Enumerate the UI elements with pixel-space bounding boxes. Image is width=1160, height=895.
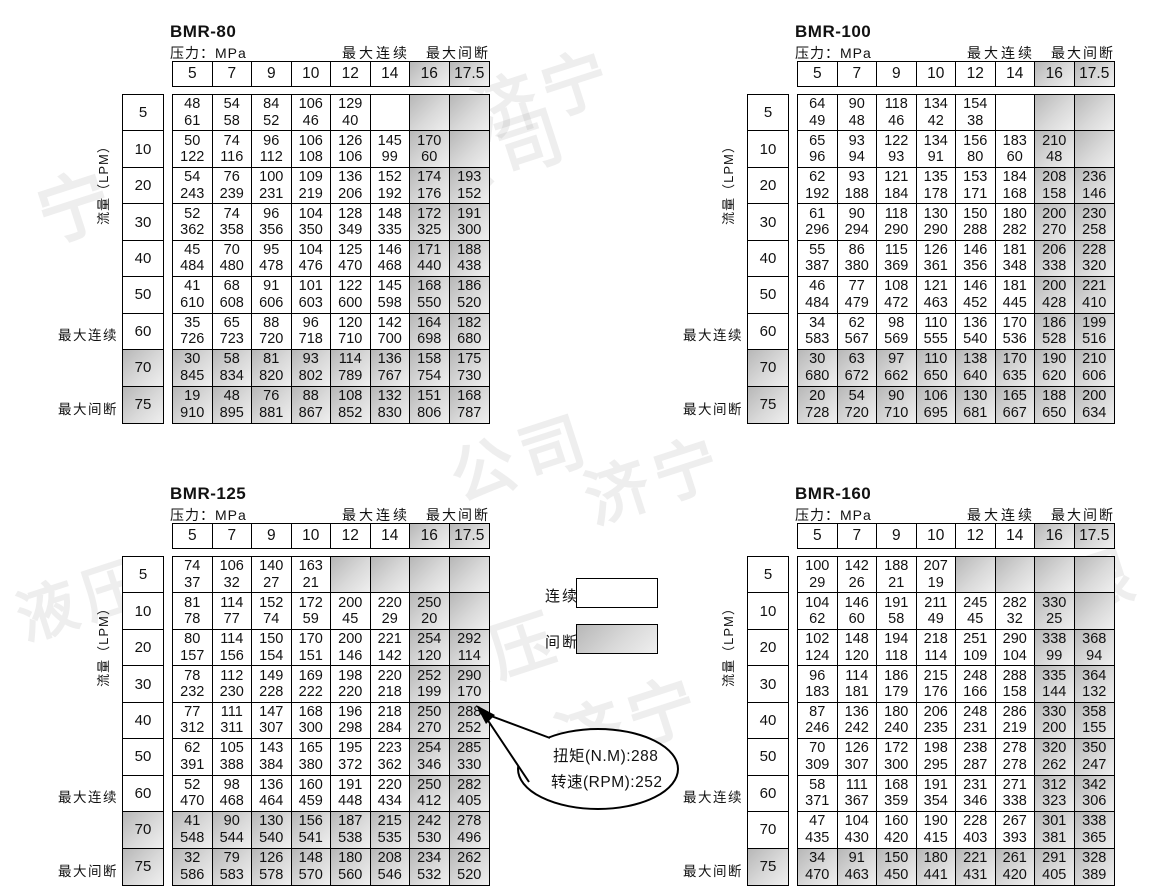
torque-value: 187 [338,813,362,830]
torque-value: 186 [884,668,908,685]
torque-value: 148 [299,850,323,867]
flow-row-40: 40 [748,241,788,277]
cell-BMR-160-75lpm-7mpa: 91463 [838,849,878,885]
pressure-col-5: 5 [798,524,838,548]
speed-value: 380 [299,757,323,774]
cell-BMR-125-70lpm-12mpa: 187538 [331,812,371,848]
speed-value: 48 [1046,149,1062,166]
cell-BMR-80-20lpm-10mpa: 109219 [292,168,332,204]
speed-value: 767 [378,368,402,385]
max-continuous-header: 最大连续 [172,505,410,525]
speed-value: 38 [967,113,983,130]
flow-row-75: 75 [748,849,788,885]
torque-value: 184 [1003,169,1027,186]
cell-BMR-100-10lpm-14mpa: 18360 [996,131,1036,167]
speed-value: 452 [963,295,987,312]
torque-value: 218 [924,631,948,648]
speed-value: 295 [924,757,948,774]
speed-value: 346 [417,757,441,774]
torque-value: 211 [924,595,947,612]
speed-value: 583 [220,867,244,884]
cell-BMR-125-5lpm-5mpa: 7437 [173,557,213,593]
torque-value: 114 [220,595,243,612]
speed-value: 120 [417,648,441,665]
torque-value: 172 [417,206,441,223]
cell-BMR-160-40lpm-12mpa: 248231 [956,703,996,739]
torque-value: 220 [378,777,402,794]
cell-BMR-100-40lpm-7mpa: 86380 [838,241,878,277]
torque-value: 188 [457,242,481,259]
torque-value: 238 [963,740,987,757]
speed-value: 578 [259,867,283,884]
speed-value: 369 [884,258,908,275]
speed-value: 586 [180,867,204,884]
torque-value: 111 [221,704,243,721]
speed-value: 192 [805,186,829,203]
cell-BMR-80-70lpm-17.5mpa: 175730 [450,350,490,386]
speed-value: 365 [1082,830,1106,847]
torque-value: 196 [338,704,362,721]
torque-value: 130 [259,813,283,830]
cell-BMR-125-60lpm-9mpa: 136464 [252,776,292,812]
speed-value: 412 [417,793,441,810]
speed-value: 428 [1042,295,1066,312]
torque-value: 142 [845,558,869,575]
pressure-col-9: 9 [877,62,917,86]
speed-value: 569 [884,331,908,348]
torque-value: 170 [1003,351,1027,368]
cell-BMR-100-40lpm-5mpa: 55387 [798,241,838,277]
speed-value: 48 [849,113,865,130]
speed-value: 60 [421,149,437,166]
torque-value: 193 [457,169,481,186]
cell-BMR-100-75lpm-10mpa: 106695 [917,387,957,423]
cell-BMR-160-75lpm-9mpa: 150450 [877,849,917,885]
flow-row-20: 20 [748,168,788,204]
speed-value: 391 [180,757,204,774]
speed-value: 541 [299,830,323,847]
cell-BMR-100-60lpm-5mpa: 34583 [798,314,838,350]
cell-BMR-100-75lpm-12mpa: 130681 [956,387,996,423]
torque-value: 126 [924,242,948,259]
cell-BMR-160-40lpm-14mpa: 286219 [996,703,1036,739]
torque-value: 254 [417,740,441,757]
speed-value: 536 [1003,331,1027,348]
cell-BMR-80-40lpm-12mpa: 125470 [331,241,371,277]
speed-value: 246 [805,720,829,737]
cell-BMR-100-70lpm-14mpa: 170635 [996,350,1036,386]
cell-BMR-80-50lpm-5mpa: 41610 [173,277,213,313]
data-grid: 4861545884521064612940501227411696112106… [172,94,490,424]
speed-value: 49 [928,611,944,628]
cell-BMR-100-70lpm-7mpa: 63672 [838,350,878,386]
torque-value: 170 [1003,315,1027,332]
torque-value: 186 [457,278,481,295]
cell-BMR-125-50lpm-7mpa: 105388 [213,739,253,775]
cell-BMR-100-10lpm-7mpa: 9394 [838,131,878,167]
cell-BMR-80-20lpm-7mpa: 76239 [213,168,253,204]
speed-value: 270 [1042,222,1066,239]
torque-value: 191 [338,777,362,794]
cell-BMR-160-60lpm-14mpa: 271338 [996,776,1036,812]
cell-BMR-125-5lpm-7mpa: 10632 [213,557,253,593]
continuous-legend-swatch [576,578,658,608]
speed-value: 192 [378,186,402,203]
max-intermittent-header: 最大间断 [1037,505,1115,525]
speed-value: 112 [260,149,283,166]
cell-BMR-160-75lpm-10mpa: 180441 [917,849,957,885]
cell-BMR-100-60lpm-17.5mpa: 199516 [1075,314,1115,350]
speed-value: 349 [338,222,362,239]
speed-value: 168 [1003,186,1027,203]
cell-BMR-80-60lpm-5mpa: 35726 [173,314,213,350]
torque-value: 163 [299,558,323,575]
speed-value: 99 [382,149,398,166]
torque-value: 248 [963,668,987,685]
speed-value: 21 [303,575,319,592]
cell-BMR-80-70lpm-14mpa: 136767 [371,350,411,386]
torque-value: 132 [378,388,402,405]
torque-value: 126 [845,740,869,757]
speed-value: 550 [417,295,441,312]
cell-BMR-125-30lpm-9mpa: 149228 [252,666,292,702]
table-bmr-160: BMR-160 压力：MPa 最大连续 最大间断 5791012141617.5… [683,486,1117,888]
speed-value: 410 [1082,295,1106,312]
speed-value: 516 [1082,331,1106,348]
torque-value: 19 [184,388,200,405]
speed-value: 94 [1086,648,1102,665]
speed-value: 59 [303,611,319,628]
cell-BMR-125-10lpm-7mpa: 11477 [213,593,253,629]
torque-value: 140 [259,558,283,575]
cell-BMR-80-70lpm-16mpa: 158754 [410,350,450,386]
torque-value: 200 [1082,388,1106,405]
torque-value: 220 [378,668,402,685]
cell-BMR-80-30lpm-12mpa: 128349 [331,204,371,240]
torque-value: 231 [963,777,987,794]
torque-value: 150 [884,850,908,867]
cell-BMR-100-60lpm-12mpa: 136540 [956,314,996,350]
speed-value: 867 [299,405,323,422]
cell-BMR-80-5lpm-5mpa: 4861 [173,95,213,131]
speed-value: 222 [299,684,323,701]
speed-value: 570 [299,867,323,884]
speed-value: 91 [928,149,944,166]
speed-value: 294 [845,222,869,239]
speed-value: 640 [963,368,987,385]
cell-BMR-100-30lpm-16mpa: 200270 [1035,204,1075,240]
speed-value: 430 [845,830,869,847]
speed-value: 270 [417,720,441,737]
cell-BMR-125-10lpm-9mpa: 15274 [252,593,292,629]
pressure-col-16: 16 [1035,524,1075,548]
cell-BMR-80-5lpm-17.5mpa [450,95,490,131]
torque-value: 250 [417,777,441,794]
speed-value: 230 [220,684,244,701]
cell-BMR-80-75lpm-17.5mpa: 168787 [450,387,490,423]
speed-value: 78 [184,611,200,628]
cell-BMR-100-30lpm-7mpa: 90294 [838,204,878,240]
cell-BMR-160-30lpm-7mpa: 114181 [838,666,878,702]
speed-value: 445 [1003,295,1027,312]
speed-value: 46 [303,113,319,130]
cell-BMR-125-50lpm-10mpa: 165380 [292,739,332,775]
cell-BMR-100-50lpm-12mpa: 146452 [956,277,996,313]
cell-BMR-80-5lpm-12mpa: 12940 [331,95,371,131]
cell-BMR-160-70lpm-9mpa: 160420 [877,812,917,848]
cell-BMR-100-5lpm-16mpa [1035,95,1075,131]
cell-BMR-80-10lpm-5mpa: 50122 [173,131,213,167]
cell-BMR-160-40lpm-7mpa: 136242 [838,703,878,739]
cell-BMR-80-70lpm-12mpa: 114789 [331,350,371,386]
speed-value: 27 [263,575,279,592]
torque-value: 54 [184,169,200,186]
speed-value: 476 [299,258,323,275]
speed-value: 434 [378,793,402,810]
speed-value: 463 [845,867,869,884]
torque-value: 104 [805,595,829,612]
cell-BMR-125-30lpm-10mpa: 169222 [292,666,332,702]
speed-value: 754 [417,368,441,385]
torque-value: 47 [809,813,825,830]
speed-value: 188 [845,186,869,203]
speed-value: 29 [809,575,825,592]
torque-value: 267 [1003,813,1027,830]
torque-value: 172 [884,740,908,757]
speed-value: 243 [180,186,204,203]
speed-value: 206 [338,186,362,203]
cell-BMR-160-50lpm-17.5mpa: 350247 [1075,739,1115,775]
cell-BMR-160-10lpm-5mpa: 10462 [798,593,838,629]
torque-value: 106 [924,388,948,405]
cell-BMR-160-50lpm-10mpa: 198295 [917,739,957,775]
cell-BMR-160-30lpm-14mpa: 288158 [996,666,1036,702]
cell-BMR-80-30lpm-10mpa: 104350 [292,204,332,240]
cell-BMR-160-50lpm-16mpa: 320262 [1035,739,1075,775]
cell-BMR-100-5lpm-5mpa: 6449 [798,95,838,131]
cell-BMR-100-50lpm-17.5mpa: 221410 [1075,277,1115,313]
speed-value: 338 [1042,258,1066,275]
torque-value: 98 [888,315,904,332]
speed-value: 520 [457,867,481,884]
speed-value: 247 [1082,757,1106,774]
flow-row-20: 20 [123,630,163,666]
torque-value: 168 [299,704,323,721]
torque-value: 88 [303,388,319,405]
speed-value: 672 [845,368,869,385]
side-label: 最大间断 [681,860,743,880]
torque-value: 215 [924,668,948,685]
torque-value: 171 [417,242,441,259]
pressure-col-9: 9 [252,524,292,548]
speed-value: 60 [1007,149,1023,166]
speed-value: 680 [457,331,481,348]
flow-row-60: 60 [748,314,788,350]
speed-value: 176 [417,186,441,203]
flow-row-70: 70 [123,812,163,848]
speed-value: 681 [963,405,987,422]
flow-row-60: 60 [748,776,788,812]
speed-value: 620 [1042,368,1066,385]
speed-value: 852 [338,405,362,422]
flow-row-30: 30 [123,204,163,240]
torque-value: 221 [1082,278,1106,295]
cell-BMR-125-20lpm-14mpa: 221142 [371,630,411,666]
pressure-header-row: 5791012141617.5 [797,523,1115,549]
torque-value: 191 [457,206,481,223]
cell-BMR-80-70lpm-9mpa: 81820 [252,350,292,386]
cell-BMR-160-20lpm-17.5mpa: 36894 [1075,630,1115,666]
cell-BMR-160-60lpm-7mpa: 111367 [838,776,878,812]
cell-BMR-80-30lpm-9mpa: 96356 [252,204,292,240]
cell-BMR-100-20lpm-14mpa: 184168 [996,168,1036,204]
torque-value: 198 [338,668,362,685]
speed-value: 555 [924,331,948,348]
cell-BMR-80-20lpm-16mpa: 174176 [410,168,450,204]
torque-value: 147 [259,704,283,721]
cell-BMR-160-70lpm-10mpa: 190415 [917,812,957,848]
torque-value: 114 [220,631,243,648]
flow-row-70: 70 [748,350,788,386]
torque-value: 188 [884,558,908,575]
cell-BMR-160-20lpm-9mpa: 194118 [877,630,917,666]
speed-value: 156 [220,648,244,665]
torque-value: 149 [259,668,283,685]
speed-value: 171 [963,186,987,203]
speed-value: 124 [805,648,829,665]
torque-value: 100 [805,558,829,575]
flow-row-30: 30 [748,666,788,702]
cell-BMR-160-75lpm-14mpa: 261420 [996,849,1036,885]
speed-value: 606 [259,295,283,312]
speed-value: 228 [259,684,283,701]
max-intermittent-header: 最大间断 [412,505,490,525]
speed-value: 152 [457,186,481,203]
cell-BMR-125-40lpm-12mpa: 196298 [331,703,371,739]
pressure-col-16: 16 [1035,62,1075,86]
torque-value: 97 [888,351,904,368]
cell-BMR-125-70lpm-10mpa: 156541 [292,812,332,848]
speed-value: 19 [928,575,944,592]
cell-BMR-100-50lpm-7mpa: 77479 [838,277,878,313]
side-label: 最大间断 [56,398,118,418]
cell-BMR-100-30lpm-10mpa: 130290 [917,204,957,240]
speed-value: 25 [1046,611,1062,628]
flow-header-column: 51020304050607075 [122,556,164,886]
cell-BMR-125-20lpm-9mpa: 150154 [252,630,292,666]
torque-value: 46 [809,278,825,295]
cell-BMR-100-70lpm-5mpa: 30680 [798,350,838,386]
speed-value: 219 [299,186,323,203]
cell-BMR-125-40lpm-14mpa: 218284 [371,703,411,739]
flow-row-30: 30 [123,666,163,702]
speed-value: 242 [845,720,869,737]
speed-value: 435 [805,830,829,847]
torque-value: 170 [417,133,441,150]
cell-BMR-160-70lpm-17.5mpa: 338365 [1075,812,1115,848]
pressure-col-10: 10 [917,62,957,86]
torque-value: 242 [417,813,441,830]
cell-BMR-80-30lpm-14mpa: 148335 [371,204,411,240]
speed-value: 122 [180,149,204,166]
pressure-col-10: 10 [292,62,332,86]
speed-value: 77 [224,611,240,628]
cell-BMR-100-40lpm-10mpa: 126361 [917,241,957,277]
torque-value: 96 [263,133,279,150]
torque-value: 330 [1042,704,1066,721]
cell-BMR-100-20lpm-17.5mpa: 236146 [1075,168,1115,204]
torque-value: 271 [1003,777,1027,794]
cell-BMR-125-75lpm-5mpa: 32586 [173,849,213,885]
cell-BMR-100-20lpm-10mpa: 135178 [917,168,957,204]
torque-value: 368 [1082,631,1106,648]
cell-BMR-100-70lpm-17.5mpa: 210606 [1075,350,1115,386]
max-intermittent-header: 最大间断 [412,43,490,63]
cell-BMR-100-70lpm-12mpa: 138640 [956,350,996,386]
torque-value: 93 [849,169,865,186]
cell-BMR-80-60lpm-14mpa: 142700 [371,314,411,350]
cell-BMR-80-75lpm-10mpa: 88867 [292,387,332,423]
side-label: 最大连续 [56,786,118,806]
flow-row-10: 10 [748,131,788,167]
speed-value: 787 [457,405,481,422]
cell-BMR-125-60lpm-14mpa: 220434 [371,776,411,812]
cell-BMR-160-60lpm-10mpa: 191354 [917,776,957,812]
cell-BMR-80-40lpm-10mpa: 104476 [292,241,332,277]
cell-BMR-80-40lpm-14mpa: 146468 [371,241,411,277]
cell-BMR-125-60lpm-7mpa: 98468 [213,776,253,812]
cell-BMR-125-50lpm-16mpa: 254346 [410,739,450,775]
cell-BMR-160-5lpm-16mpa [1035,557,1075,593]
cell-BMR-80-10lpm-10mpa: 106108 [292,131,332,167]
cell-BMR-160-10lpm-10mpa: 21149 [917,593,957,629]
cell-BMR-160-5lpm-9mpa: 18821 [877,557,917,593]
speed-value: 346 [963,793,987,810]
speed-value: 520 [457,295,481,312]
flow-row-70: 70 [748,812,788,848]
speed-value: 695 [924,405,948,422]
torque-value: 320 [1042,740,1066,757]
speed-value: 895 [220,405,244,422]
torque-value: 136 [845,704,869,721]
flow-row-75: 75 [123,387,163,423]
torque-value: 190 [924,813,948,830]
cell-BMR-125-75lpm-10mpa: 148570 [292,849,332,885]
torque-value: 35 [184,315,200,332]
speed-value: 104 [1003,648,1027,665]
cell-BMR-80-5lpm-9mpa: 8452 [252,95,292,131]
speed-value: 441 [924,867,948,884]
cell-BMR-100-30lpm-17.5mpa: 230258 [1075,204,1115,240]
torque-value: 95 [263,242,279,259]
cell-BMR-80-75lpm-9mpa: 76881 [252,387,292,423]
torque-value: 90 [849,206,865,223]
torque-value: 52 [184,777,200,794]
cell-BMR-125-5lpm-16mpa [410,557,450,593]
cell-BMR-80-10lpm-17.5mpa [450,131,490,167]
cell-BMR-80-50lpm-7mpa: 68608 [213,277,253,313]
speed-value: 219 [1003,720,1027,737]
speed-value: 834 [220,368,244,385]
torque-value: 156 [299,813,323,830]
data-grid: 1002914226188212071910462146601915821149… [797,556,1115,886]
speed-value: 544 [220,830,244,847]
speed-value: 49 [809,113,825,130]
torque-value: 228 [963,813,987,830]
cell-BMR-160-5lpm-14mpa [996,557,1036,593]
cell-BMR-80-20lpm-5mpa: 54243 [173,168,213,204]
speed-value: 184 [884,186,908,203]
